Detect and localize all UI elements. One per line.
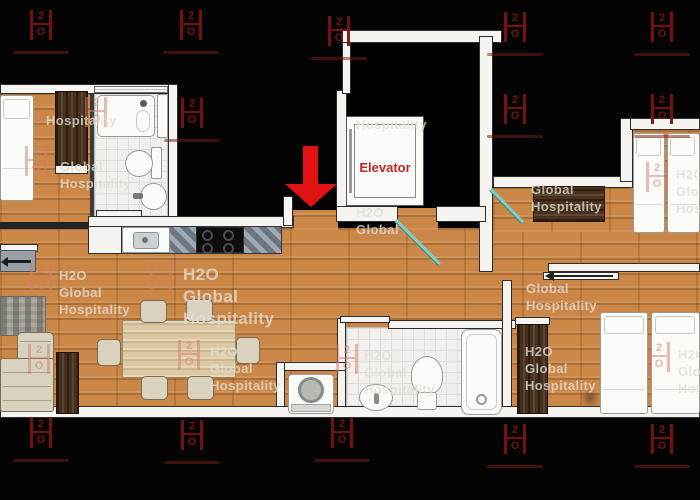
- pillow: [604, 316, 644, 334]
- sink-top-left: [140, 183, 167, 210]
- armchair-line: [20, 341, 51, 342]
- logo-glyph-top: 2: [328, 16, 350, 31]
- washer-panel: [291, 404, 331, 412]
- watermark-tagline-bar: [13, 459, 69, 462]
- logo-glyph-top: 2: [504, 424, 526, 439]
- cooktop: [196, 227, 244, 253]
- pillow: [636, 137, 661, 156]
- logo-glyph-top: 2: [651, 12, 673, 27]
- h2o-logo-watermark: 2O: [30, 418, 52, 448]
- dining-chair: [186, 299, 213, 322]
- bed-fold-line: [603, 389, 645, 390]
- flush-dot: [425, 399, 431, 405]
- wardrobe-top-left: [55, 91, 88, 165]
- tv-arrow: [1, 257, 8, 267]
- partition-arrow-head: [545, 271, 554, 281]
- rug-gray: [0, 296, 46, 336]
- toilet-bottom-bowl: [411, 356, 443, 394]
- entrance-arrow-shaft: [303, 146, 318, 186]
- watermark-tagline-bar: [634, 465, 690, 468]
- h2o-logo-watermark: 2O: [331, 418, 353, 448]
- watermark-tagline-bar: [487, 465, 543, 468]
- wall-bathroom-bottom-right: [502, 280, 512, 416]
- tv-console: [0, 250, 36, 272]
- sofa-line: [3, 372, 51, 373]
- rug-bedroom-right: [533, 186, 605, 222]
- logo-glyph-bottom: O: [30, 25, 52, 40]
- watermark-tagline-bar: [13, 51, 69, 54]
- bed-fold-line: [636, 204, 662, 205]
- shelf-top-left: [55, 165, 88, 174]
- sink-tap-glyph: [374, 393, 379, 404]
- washing-machine: [288, 374, 334, 414]
- burner: [202, 243, 213, 254]
- h2o-logo-watermark: 2O: [651, 424, 673, 454]
- h2o-logo-watermark: 2O: [504, 12, 526, 42]
- h2o-logo-watermark: 2O: [181, 98, 203, 128]
- pillow: [655, 316, 695, 334]
- bed-fold-line: [3, 168, 31, 169]
- burner: [223, 243, 234, 254]
- logo-glyph-bottom: O: [504, 27, 526, 42]
- h2o-logo-watermark: 2O: [30, 10, 52, 40]
- dining-table: [122, 320, 236, 378]
- logo-glyph-bottom: O: [651, 27, 673, 42]
- floor-shadow: [580, 388, 600, 408]
- entrance-arrow-head: [285, 184, 337, 207]
- logo-glyph-top: 2: [331, 418, 353, 433]
- logo-glyph-bottom: O: [181, 113, 203, 128]
- watermark-tagline-bar: [314, 459, 370, 462]
- pillow: [3, 99, 30, 119]
- dining-chair: [236, 337, 260, 364]
- door-leaf-bathroom-top-left: [96, 210, 142, 217]
- logo-glyph-top: 2: [651, 94, 673, 109]
- wall-bedroom-right-upper-top: [630, 118, 700, 130]
- sink-tap: [133, 193, 143, 199]
- shower-head: [140, 100, 147, 107]
- tv-bar: [5, 260, 31, 263]
- shower: [97, 95, 155, 137]
- elevator-label: Elevator: [346, 160, 424, 176]
- wardrobe-bottom-right: [517, 324, 548, 414]
- bathtub-drain: [476, 394, 487, 405]
- sofa-line: [3, 400, 51, 401]
- watermark-tagline-bar: [634, 53, 690, 56]
- h2o-logo-watermark: 2O: [504, 94, 526, 124]
- sofa: [0, 358, 54, 412]
- sink-bathroom-bottom: [359, 384, 393, 411]
- bed-top-left: [0, 95, 34, 201]
- faucet-dot: [142, 237, 148, 243]
- logo-glyph-top: 2: [30, 10, 52, 25]
- h2o-logo-watermark: 2O: [180, 10, 202, 40]
- pillow: [670, 137, 695, 156]
- watermark-tagline-bar: [487, 135, 543, 138]
- logo-glyph-top: 2: [180, 10, 202, 25]
- watermark-tagline-bar: [164, 461, 220, 464]
- bed-right-bottom-2: [651, 312, 700, 414]
- sofa-line: [3, 386, 51, 387]
- logo-glyph-bottom: O: [30, 433, 52, 448]
- logo-glyph-top: 2: [30, 418, 52, 433]
- logo-glyph-bottom: O: [180, 25, 202, 40]
- watermark-tagline-bar: [487, 53, 543, 56]
- shower-tray: [136, 110, 150, 132]
- bed-right-top-1: [633, 133, 665, 233]
- toilet-top-left-bowl: [125, 150, 153, 177]
- wall-top-left-wing-right: [168, 84, 178, 230]
- wall-bedroom-bathroom-divider: [90, 93, 94, 223]
- h2o-logo-watermark: 2O: [504, 424, 526, 454]
- logo-glyph-top: 2: [181, 98, 203, 113]
- logo-glyph-top: 2: [651, 424, 673, 439]
- bed-fold-line: [654, 389, 697, 390]
- burner: [223, 230, 234, 241]
- washer-drum: [298, 377, 324, 403]
- wall-bathroom-bottom-top: [388, 320, 516, 329]
- dining-chair: [141, 376, 168, 400]
- logo-glyph-bottom: O: [331, 433, 353, 448]
- floor-entrance-hall: [292, 210, 338, 230]
- kitchen-cabinet-white: [88, 226, 122, 254]
- door-leaf-bathroom-bottom: [340, 316, 390, 323]
- towel-rail: [157, 94, 168, 138]
- watermark-tagline-bar: [163, 51, 219, 54]
- bed-fold-line: [670, 204, 697, 205]
- bathtub: [461, 329, 502, 415]
- h2o-logo-watermark: 2O: [651, 12, 673, 42]
- wall-elevator-bottom-left: [336, 206, 398, 222]
- burner: [202, 230, 213, 241]
- wall-elevator-top: [342, 30, 502, 43]
- logo-glyph-bottom: O: [504, 439, 526, 454]
- wall-bottom: [0, 406, 700, 418]
- floorplan-image: Elevator 2OGlobalHospitality2OHospitalit…: [0, 0, 700, 500]
- toilet-bottom-base: [417, 392, 437, 410]
- wall-laundry-niche-top: [276, 362, 346, 371]
- partition-bar-upper: [548, 263, 700, 272]
- window-top-left: [94, 86, 168, 93]
- h2o-logo-watermark: 2O: [181, 420, 203, 450]
- logo-glyph-bottom: O: [181, 435, 203, 450]
- kitchen-sink-unit: [122, 227, 170, 253]
- wall-bedroom-living-divider: [0, 222, 90, 229]
- dining-chair: [187, 376, 214, 400]
- logo-glyph-top: 2: [504, 12, 526, 27]
- side-console-dark: [56, 352, 79, 414]
- logo-glyph-top: 2: [504, 94, 526, 109]
- logo-glyph-bottom: O: [504, 109, 526, 124]
- logo-glyph-top: 2: [181, 420, 203, 435]
- wall-elevator-bottom-right: [436, 206, 486, 222]
- partition-arrow-line: [553, 275, 613, 277]
- dining-chair: [97, 339, 121, 366]
- dining-chair: [140, 300, 167, 323]
- bed-right-top-2: [667, 133, 700, 233]
- bed-right-bottom-1: [600, 312, 648, 414]
- wall-elevator-right: [479, 36, 493, 272]
- logo-glyph-bottom: O: [651, 439, 673, 454]
